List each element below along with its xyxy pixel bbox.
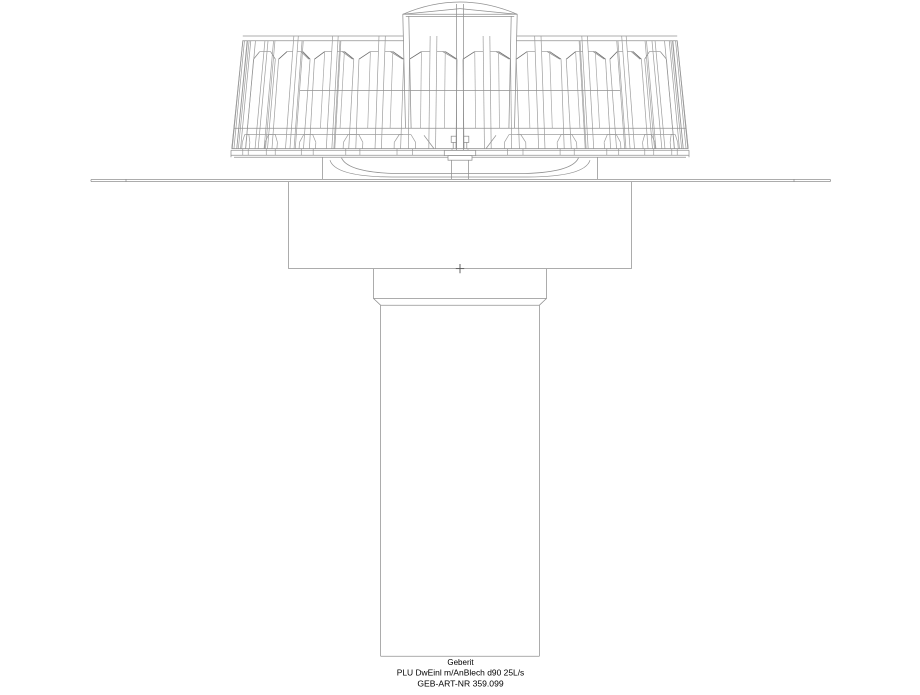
svg-text:PLU DwEinl m/AnBlech d90 25L/s: PLU DwEinl m/AnBlech d90 25L/s <box>397 667 525 677</box>
svg-text:Geberit: Geberit <box>447 658 474 667</box>
svg-text:GEB-ART-NR 359.099: GEB-ART-NR 359.099 <box>417 678 504 688</box>
